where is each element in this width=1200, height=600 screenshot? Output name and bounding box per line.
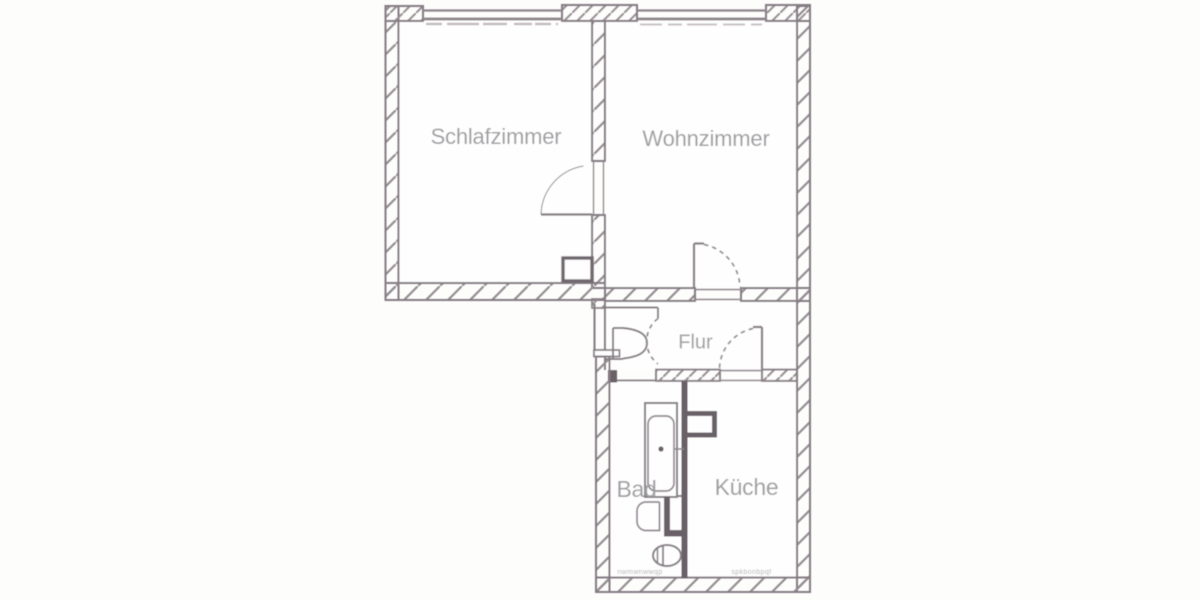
svg-text:Bad: Bad — [616, 476, 656, 502]
svg-text:nwmwnwwqp: nwmwnwwqp — [617, 569, 662, 576]
svg-text:spkbonbpqf: spkbonbpqf — [731, 569, 771, 576]
svg-text:Wohnzimmer: Wohnzimmer — [642, 126, 769, 151]
svg-text:Küche: Küche — [715, 474, 779, 500]
svg-text:Flur: Flur — [678, 332, 713, 354]
svg-text:Schlafzimmer: Schlafzimmer — [431, 124, 562, 149]
